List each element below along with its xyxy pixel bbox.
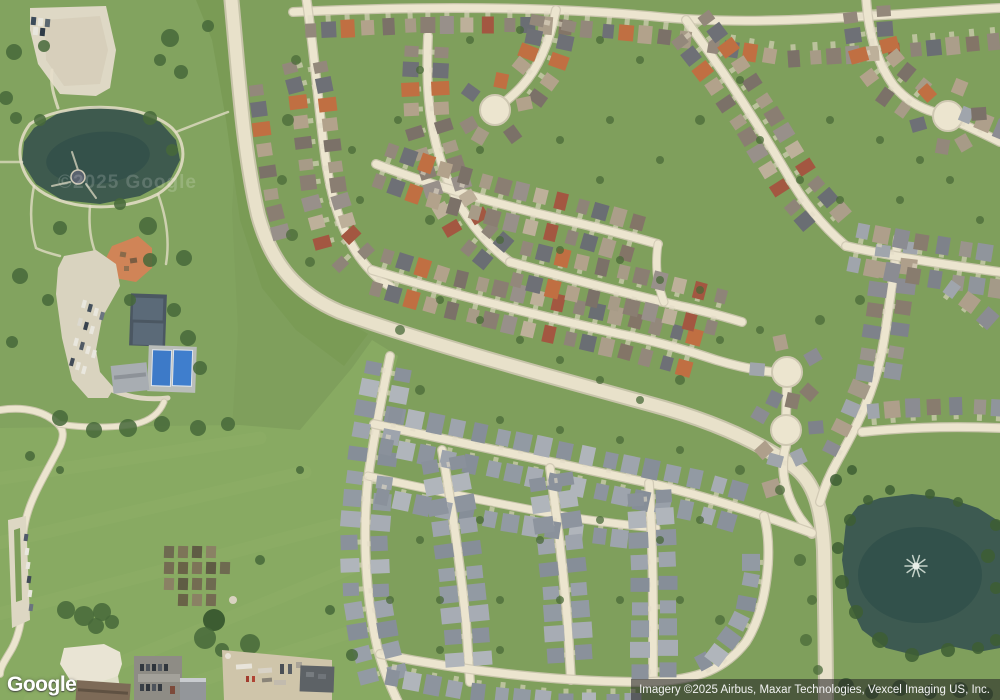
map-viewport[interactable]: ©2025 Google Google Imagery ©2025 Airbus… (0, 0, 1000, 700)
attribution-bar: Imagery ©2025 Airbus, Maxar Technologies… (631, 679, 1000, 700)
attribution-text: Imagery ©2025 Airbus, Maxar Technologies… (639, 684, 990, 696)
google-logo[interactable]: Google (7, 673, 76, 697)
